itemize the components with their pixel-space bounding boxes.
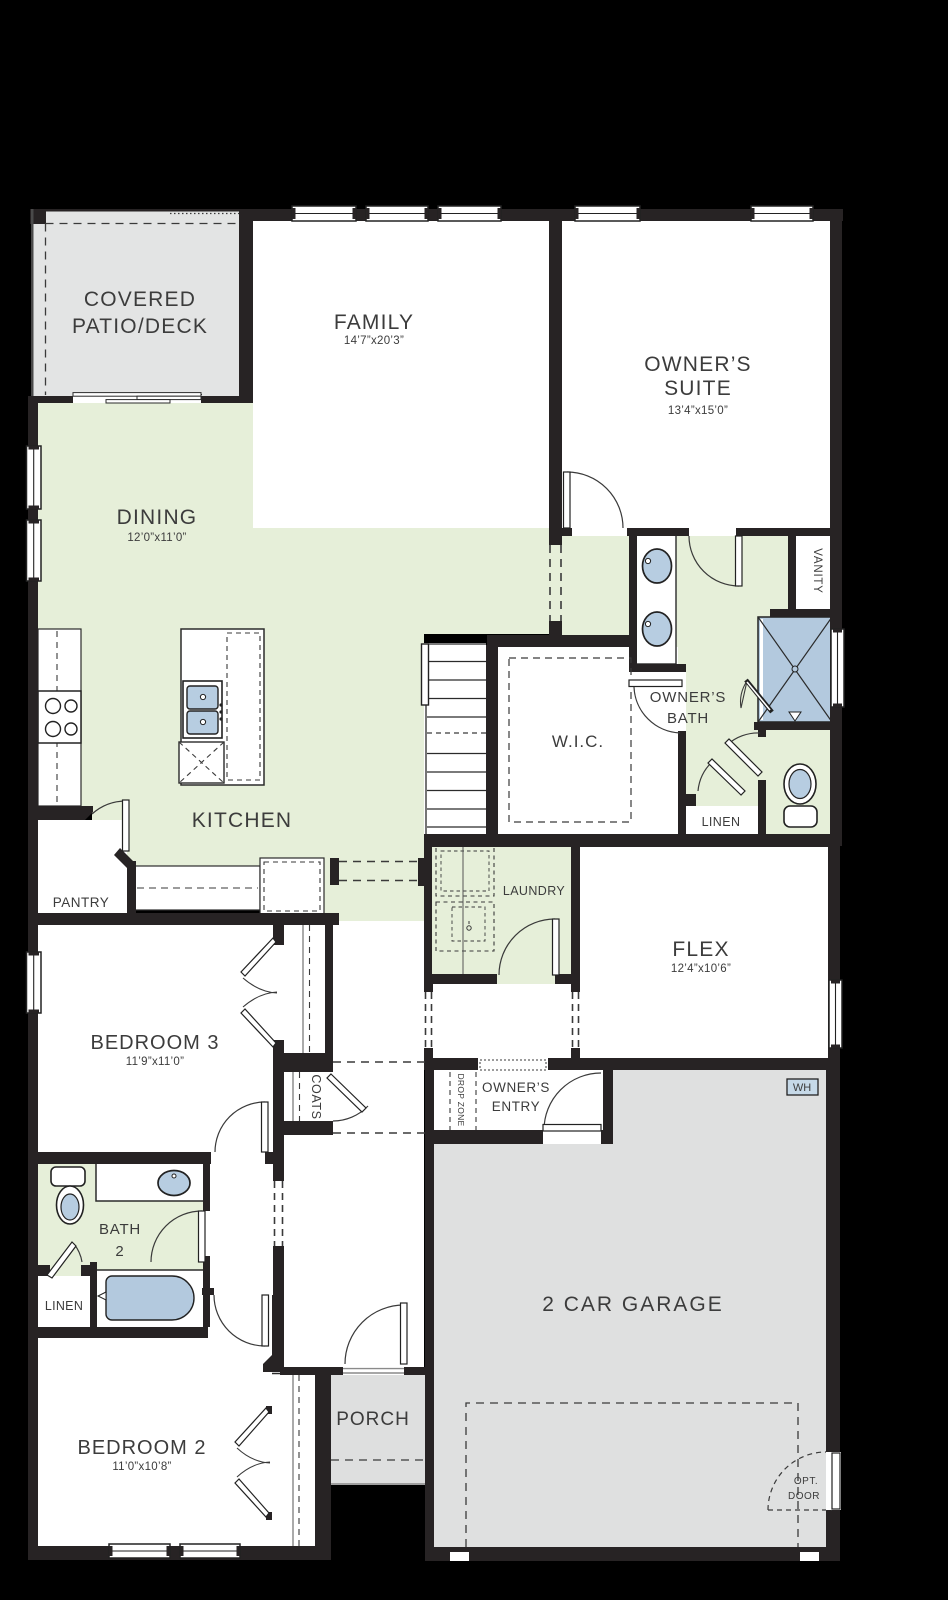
svg-text:COVERED: COVERED <box>84 288 196 311</box>
svg-text:12’0”x11’0”: 12’0”x11’0” <box>127 532 186 544</box>
svg-text:LINEN: LINEN <box>45 1299 83 1313</box>
svg-text:ENTRY: ENTRY <box>492 1099 541 1114</box>
svg-text:14’7”x20’3”: 14’7”x20’3” <box>344 335 404 347</box>
svg-text:13’4”x15’0”: 13’4”x15’0” <box>668 405 728 417</box>
svg-text:BEDROOM 3: BEDROOM 3 <box>90 1032 219 1054</box>
svg-text:KITCHEN: KITCHEN <box>192 809 293 832</box>
svg-text:VANITY: VANITY <box>811 548 823 593</box>
svg-text:11’9”x11’0”: 11’9”x11’0” <box>126 1056 185 1068</box>
svg-text:11’0”x10’8”: 11’0”x10’8” <box>112 1461 171 1473</box>
svg-text:2: 2 <box>115 1243 124 1260</box>
svg-text:LAUNDRY: LAUNDRY <box>503 884 566 898</box>
svg-text:WH: WH <box>793 1082 811 1094</box>
svg-text:BATH: BATH <box>667 710 709 727</box>
svg-text:OWNER’S: OWNER’S <box>644 353 752 376</box>
svg-text:DINING: DINING <box>117 506 198 529</box>
svg-text:BEDROOM 2: BEDROOM 2 <box>77 1437 206 1459</box>
svg-text:OPT.: OPT. <box>794 1476 818 1487</box>
svg-text:PORCH: PORCH <box>336 1409 410 1430</box>
svg-text:LINEN: LINEN <box>702 815 741 829</box>
svg-text:DOOR: DOOR <box>788 1491 820 1502</box>
svg-text:PANTRY: PANTRY <box>53 895 110 910</box>
svg-text:COATS: COATS <box>309 1074 323 1119</box>
svg-text:PATIO/DECK: PATIO/DECK <box>72 315 208 338</box>
svg-text:SUITE: SUITE <box>664 377 732 400</box>
svg-text:12’4”x10’6”: 12’4”x10’6” <box>671 963 731 975</box>
svg-text:BATH: BATH <box>99 1221 141 1238</box>
svg-text:W.I.C.: W.I.C. <box>552 732 604 751</box>
svg-text:FLEX: FLEX <box>672 938 729 961</box>
svg-text:OWNER’S: OWNER’S <box>482 1080 550 1095</box>
svg-text:DROP ZONE: DROP ZONE <box>456 1073 466 1126</box>
svg-text:2 CAR GARAGE: 2 CAR GARAGE <box>542 1293 724 1316</box>
svg-text:FAMILY: FAMILY <box>334 311 414 334</box>
svg-text:OWNER’S: OWNER’S <box>650 689 726 706</box>
